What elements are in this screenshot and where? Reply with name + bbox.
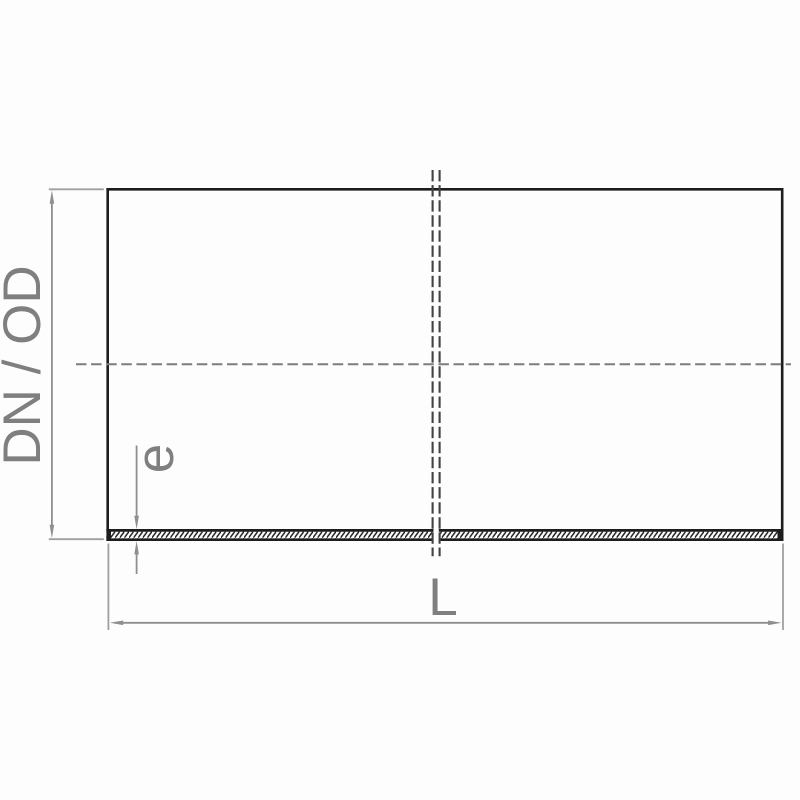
svg-text:DN / OD: DN / OD	[0, 265, 52, 465]
svg-text:L: L	[428, 568, 457, 627]
svg-text:e: e	[126, 444, 185, 473]
